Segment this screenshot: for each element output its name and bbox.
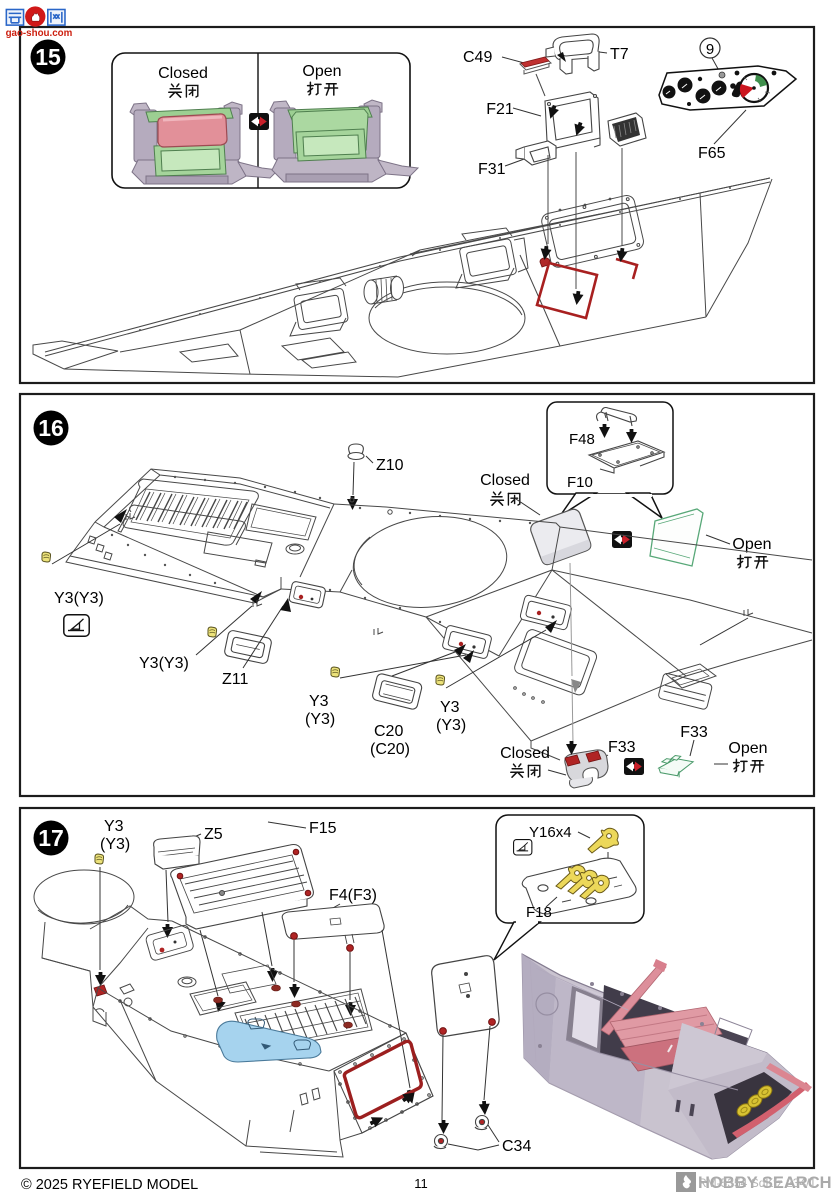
svg-text:Z5: Z5 bbox=[204, 826, 223, 843]
svg-text:Closed: Closed bbox=[500, 745, 550, 762]
svg-text:16: 16 bbox=[38, 415, 64, 441]
svg-text:15: 15 bbox=[35, 44, 61, 70]
svg-text:F48: F48 bbox=[569, 431, 595, 448]
svg-text:(Y3): (Y3) bbox=[305, 711, 335, 728]
svg-text:Closed: Closed bbox=[480, 472, 530, 489]
svg-text:F4(F3): F4(F3) bbox=[329, 887, 377, 904]
svg-text:9: 9 bbox=[706, 41, 714, 58]
svg-text:F33: F33 bbox=[608, 739, 636, 756]
svg-text:gao-shou.com: gao-shou.com bbox=[6, 28, 73, 39]
svg-text:Y3(Y3): Y3(Y3) bbox=[139, 655, 189, 672]
svg-text:C49: C49 bbox=[463, 49, 492, 66]
svg-text:(C20): (C20) bbox=[370, 741, 410, 758]
svg-text:F33: F33 bbox=[680, 724, 708, 741]
svg-text:11: 11 bbox=[414, 1176, 428, 1191]
svg-text:© 2025 RYEFIELD MODEL: © 2025 RYEFIELD MODEL bbox=[21, 1177, 198, 1193]
svg-text:Y3: Y3 bbox=[104, 818, 124, 835]
svg-text:F10: F10 bbox=[567, 474, 593, 491]
svg-text:F31: F31 bbox=[478, 161, 506, 178]
svg-text:Open: Open bbox=[302, 63, 341, 80]
svg-text:RM-5354 SdKfz 234/1: RM-5354 SdKfz 234/1 bbox=[698, 1176, 816, 1190]
svg-text:(Y3): (Y3) bbox=[100, 836, 130, 853]
svg-text:F18: F18 bbox=[526, 904, 552, 921]
svg-text:F15: F15 bbox=[309, 820, 337, 837]
svg-text:Y3(Y3): Y3(Y3) bbox=[54, 590, 104, 607]
svg-text:T7: T7 bbox=[610, 46, 629, 63]
svg-text:F21: F21 bbox=[486, 101, 514, 118]
svg-text:Y16x4: Y16x4 bbox=[529, 824, 572, 841]
svg-text:(Y3): (Y3) bbox=[436, 717, 466, 734]
svg-text:Z10: Z10 bbox=[376, 457, 404, 474]
svg-text:C20: C20 bbox=[374, 723, 403, 740]
svg-text:C34: C34 bbox=[502, 1138, 531, 1155]
svg-text:17: 17 bbox=[38, 825, 64, 851]
svg-text:F65: F65 bbox=[698, 145, 726, 162]
svg-text:Z11: Z11 bbox=[222, 671, 248, 688]
svg-text:Y3: Y3 bbox=[440, 699, 460, 716]
svg-text:Y3: Y3 bbox=[309, 693, 329, 710]
svg-text:Open: Open bbox=[728, 740, 767, 757]
svg-text:Closed: Closed bbox=[158, 65, 208, 82]
